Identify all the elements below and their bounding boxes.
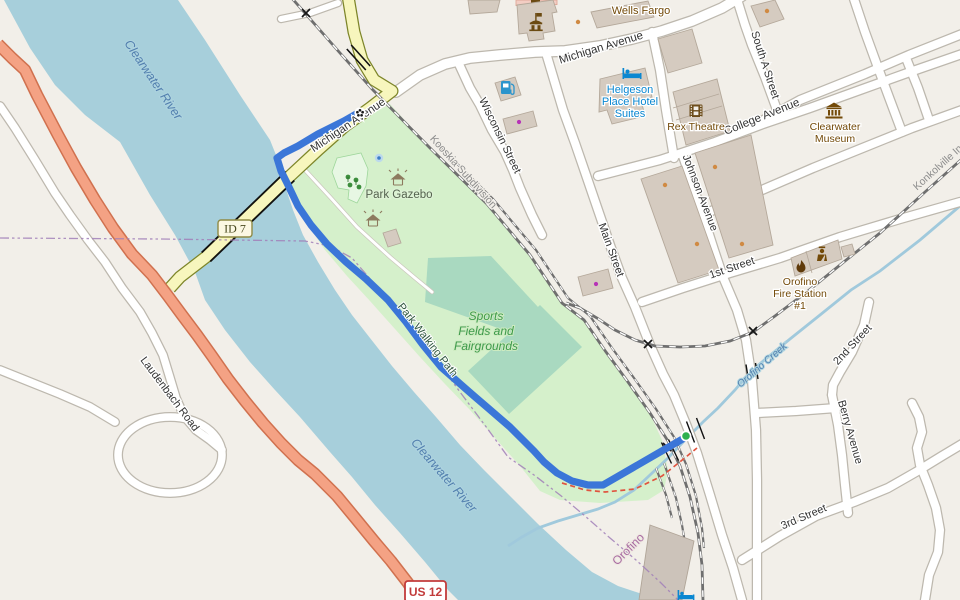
svg-text:Fire Station: Fire Station: [773, 288, 827, 300]
svg-text:Museum: Museum: [815, 133, 856, 145]
svg-text:#1: #1: [794, 300, 806, 312]
svg-text:Rex Theatre: Rex Theatre: [667, 121, 725, 133]
svg-text:ID 7: ID 7: [224, 222, 246, 236]
svg-text:Suites: Suites: [615, 108, 646, 120]
svg-text:Orofino: Orofino: [783, 276, 818, 288]
svg-text:Fields and: Fields and: [458, 324, 514, 338]
svg-text:Sports: Sports: [469, 309, 504, 323]
svg-text:Fairgrounds: Fairgrounds: [454, 339, 518, 353]
svg-text:Clearwater: Clearwater: [810, 121, 861, 133]
svg-text:Wells Fargo: Wells Fargo: [612, 5, 670, 17]
svg-text:Park Gazebo: Park Gazebo: [365, 189, 432, 201]
svg-text:Helgeson: Helgeson: [607, 84, 653, 96]
svg-text:US 12: US 12: [409, 585, 443, 599]
svg-text:Place Hotel: Place Hotel: [602, 96, 658, 108]
